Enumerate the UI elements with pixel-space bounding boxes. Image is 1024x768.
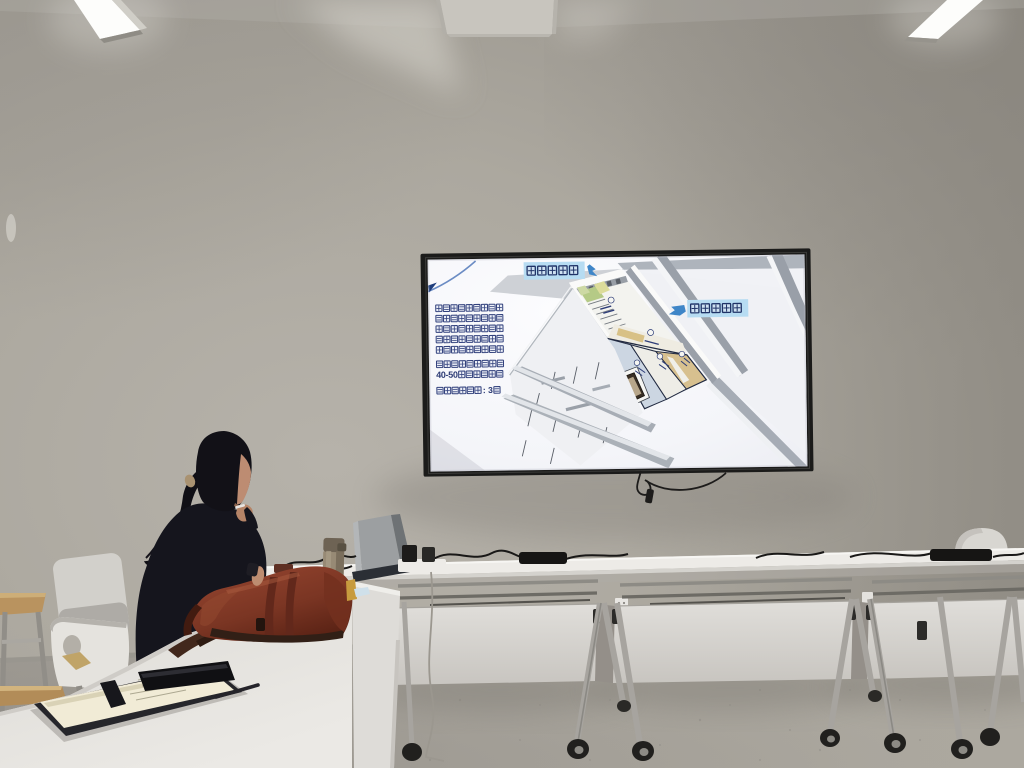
- svg-text:: 3: : 3: [483, 385, 493, 395]
- svg-text:40-50: 40-50: [436, 370, 458, 380]
